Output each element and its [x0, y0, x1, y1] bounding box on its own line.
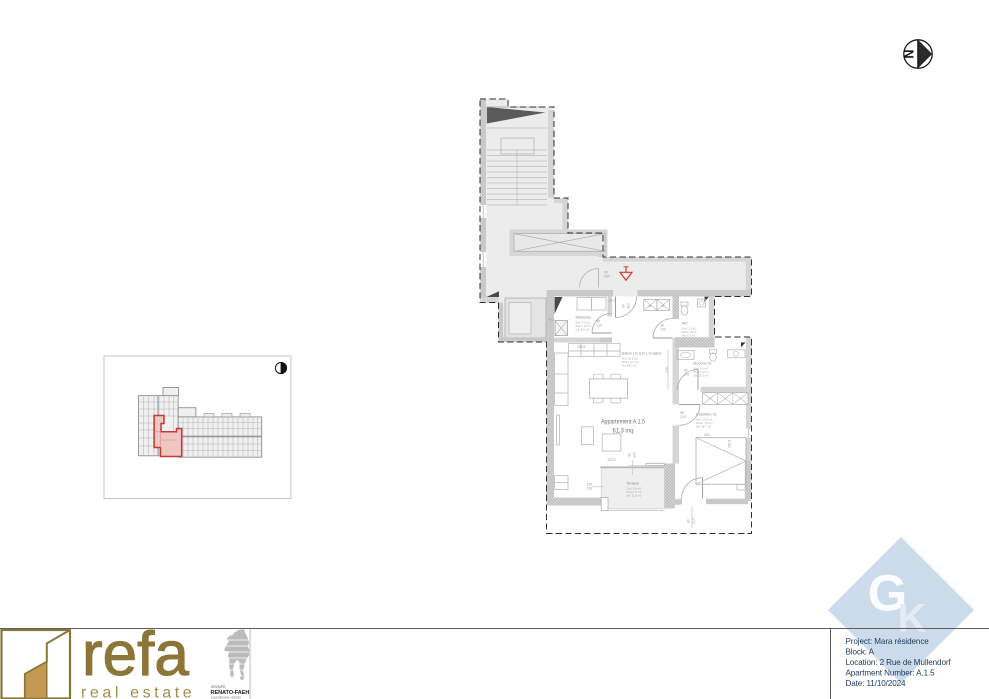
svg-text:200: 200	[604, 275, 610, 279]
svg-text:Douche 01: Douche 01	[694, 362, 712, 366]
svg-text:Chambre 01: Chambre 01	[696, 413, 717, 417]
svg-text:Perim: 27.2 m: Perim: 27.2 m	[622, 360, 639, 364]
svg-text:WC: WC	[682, 322, 689, 326]
svg-text:210: 210	[681, 415, 687, 419]
svg-text:Surf: 4.9 m2: Surf: 4.9 m2	[694, 366, 709, 370]
svg-text:210: 210	[684, 373, 690, 377]
svg-text:N: N	[902, 49, 916, 58]
svg-text:258.5: 258.5	[608, 299, 616, 303]
svg-text:K: K	[898, 597, 927, 641]
svg-text:Surf: 2.3 m2: Surf: 2.3 m2	[682, 326, 697, 330]
svg-text:200: 200	[704, 433, 710, 437]
svg-text:60: 60	[661, 304, 665, 308]
svg-text:303.3: 303.3	[608, 458, 616, 462]
svg-text:210: 210	[597, 324, 603, 328]
svg-text:Surf: 13.9 m2: Surf: 13.9 m2	[696, 417, 713, 421]
svg-text:Appartement A.1.5: Appartement A.1.5	[601, 419, 645, 426]
svg-text:Apartment Number: A.1.5: Apartment Number: A.1.5	[846, 669, 936, 678]
svg-text:220: 220	[633, 452, 637, 458]
svg-text:Vol: 11.0 m3: Vol: 11.0 m3	[627, 493, 642, 497]
svg-text:Perim: 6.0 m: Perim: 6.0 m	[682, 330, 698, 334]
svg-text:210: 210	[661, 328, 667, 332]
svg-text:Vol: 5.7 m3: Vol: 5.7 m3	[682, 333, 696, 337]
svg-text:45: 45	[648, 304, 652, 308]
svg-text:Vol: 12.3 m3: Vol: 12.3 m3	[694, 373, 709, 377]
svg-text:Date: 11/10/2024: Date: 11/10/2024	[846, 679, 906, 688]
svg-text:Vol: 89.1 m3: Vol: 89.1 m3	[622, 363, 637, 367]
svg-text:Surf: 9.6 m2: Surf: 9.6 m2	[627, 486, 642, 490]
svg-text:Vol: 9.9 m3: Vol: 9.9 m3	[576, 327, 590, 331]
svg-text:220: 220	[627, 303, 631, 309]
svg-text:real estate: real estate	[81, 685, 195, 699]
svg-text:Débarras: Débarras	[576, 316, 592, 320]
svg-text:Luxembourg • Suisse: Luxembourg • Suisse	[211, 695, 241, 699]
svg-text:61,3 mq: 61,3 mq	[613, 428, 634, 435]
svg-text:Surf: 3.6 m2: Surf: 3.6 m2	[576, 320, 591, 324]
svg-text:Location: 2 Rue de Mullendorf: Location: 2 Rue de Mullendorf	[846, 658, 952, 667]
svg-text:Perim: 9.7 m: Perim: 9.7 m	[627, 490, 643, 494]
svg-text:402.5: 402.5	[728, 440, 732, 448]
svg-text:Project: Mara résidence: Project: Mara résidence	[846, 637, 930, 646]
svg-text:Block: A: Block: A	[846, 648, 875, 657]
svg-text:Perim: 15.0 m: Perim: 15.0 m	[696, 421, 713, 425]
svg-text:Perim: 8.3 m: Perim: 8.3 m	[576, 324, 592, 328]
svg-text:Perim: 9.0 m: Perim: 9.0 m	[694, 370, 710, 374]
svg-text:80: 80	[687, 519, 691, 523]
svg-text:Salon | S.à.m | Cuisine: Salon | S.à.m | Cuisine	[622, 351, 663, 356]
svg-text:Surf: 30.6 m2: Surf: 30.6 m2	[622, 356, 639, 360]
svg-text:refa: refa	[82, 620, 189, 689]
svg-text:215: 215	[587, 487, 593, 491]
svg-text:45.2: 45.2	[549, 318, 555, 322]
svg-text:223.5: 223.5	[577, 345, 585, 349]
svg-text:Terrace: Terrace	[627, 482, 640, 486]
svg-text:Vol: 36.7 m3: Vol: 36.7 m3	[696, 424, 711, 428]
svg-text:90: 90	[622, 304, 626, 308]
svg-text:GROUPE: GROUPE	[211, 685, 226, 689]
svg-text:90: 90	[628, 453, 632, 457]
